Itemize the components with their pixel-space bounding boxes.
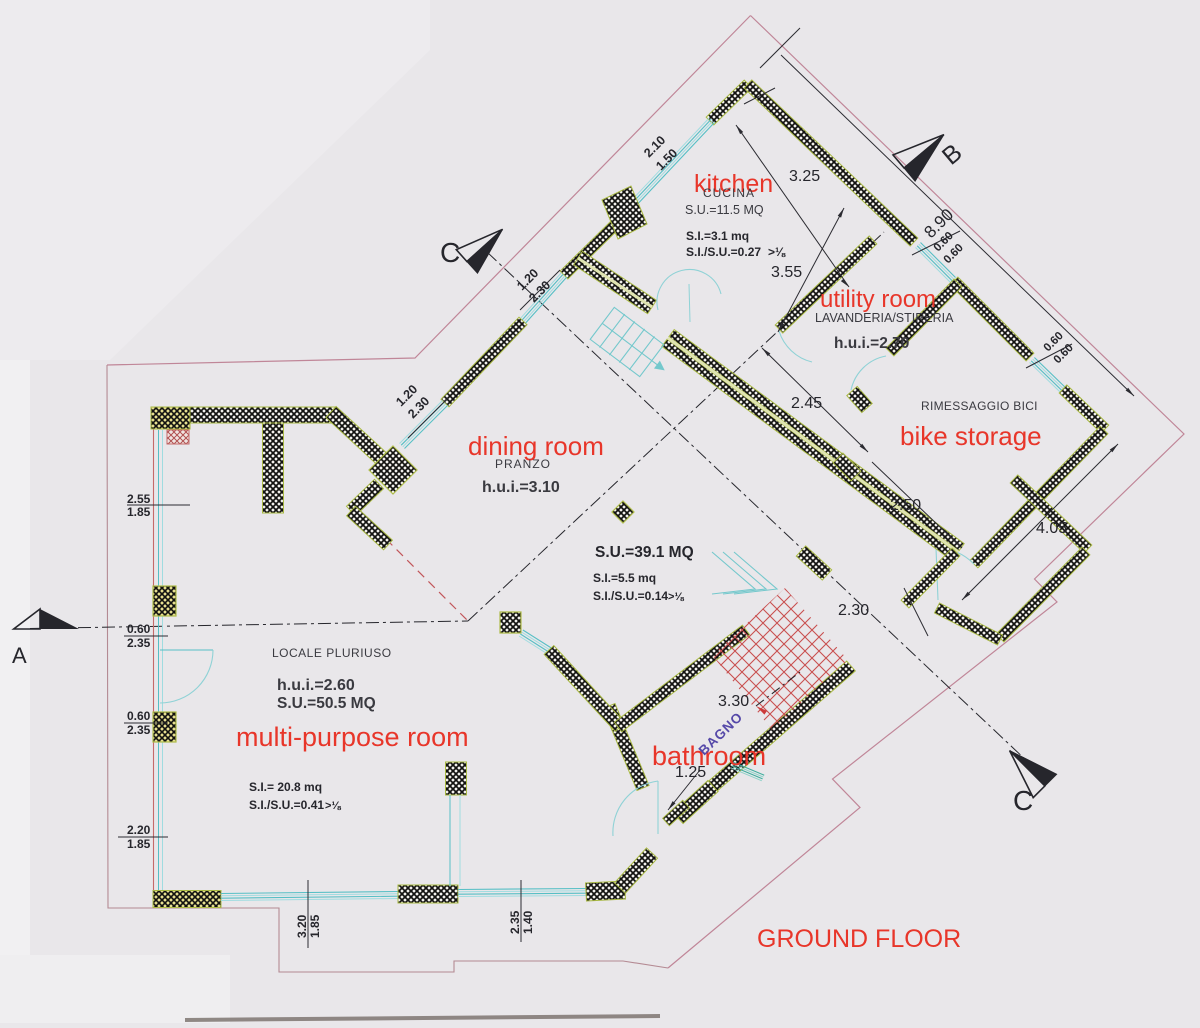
svg-text:C: C — [440, 237, 460, 268]
svg-text:>⅛: >⅛ — [325, 800, 341, 812]
svg-text:3.25: 3.25 — [789, 168, 820, 185]
svg-text:h.u.i.=2.60: h.u.i.=2.60 — [277, 677, 355, 694]
svg-text:1.85: 1.85 — [308, 914, 322, 938]
svg-text:2.35: 2.35 — [508, 910, 522, 934]
svg-text:h.u.i.=3.10: h.u.i.=3.10 — [482, 479, 560, 496]
svg-text:1.85: 1.85 — [127, 837, 151, 851]
svg-text:1.25: 1.25 — [675, 764, 706, 781]
svg-text:multi-purpose room: multi-purpose room — [236, 722, 469, 752]
svg-text:1.40: 1.40 — [521, 910, 535, 934]
svg-text:2.20: 2.20 — [127, 823, 151, 837]
svg-text:S.I.=3.1 mq: S.I.=3.1 mq — [686, 229, 749, 243]
svg-text:S.U.=50.5 MQ: S.U.=50.5 MQ — [277, 695, 376, 712]
svg-text:PRANZO: PRANZO — [495, 457, 551, 471]
svg-text:3.20: 3.20 — [295, 914, 309, 938]
svg-text:C: C — [1013, 785, 1033, 816]
svg-text:0.60: 0.60 — [127, 622, 151, 636]
svg-text:3.55: 3.55 — [771, 264, 802, 281]
svg-text:S.U.=11.5 MQ: S.U.=11.5 MQ — [685, 203, 764, 217]
svg-text:S.I./S.U.=0.27: S.I./S.U.=0.27 — [686, 245, 761, 259]
svg-text:S.I./S.U.=0.41: S.I./S.U.=0.41 — [249, 798, 324, 812]
svg-text:A: A — [12, 643, 27, 668]
svg-text:S.I.=5.5 mq: S.I.=5.5 mq — [593, 571, 656, 585]
svg-text:2.35: 2.35 — [127, 636, 151, 650]
svg-text:LAVANDERIA/STIRERIA: LAVANDERIA/STIRERIA — [815, 311, 954, 325]
svg-text:CUCINA: CUCINA — [703, 186, 755, 200]
svg-text:3.30: 3.30 — [718, 693, 749, 710]
svg-text:2.55: 2.55 — [127, 492, 151, 506]
svg-text:4.05: 4.05 — [1036, 520, 1067, 537]
svg-text:S.U.=39.1 MQ: S.U.=39.1 MQ — [595, 544, 694, 561]
svg-text:>⅛: >⅛ — [768, 245, 786, 259]
svg-text:RIMESSAGGIO BICI: RIMESSAGGIO BICI — [921, 399, 1038, 413]
svg-text:S.I.= 20.8 mq: S.I.= 20.8 mq — [249, 780, 322, 794]
svg-text:2.35: 2.35 — [127, 723, 151, 737]
svg-text:1.85: 1.85 — [127, 505, 151, 519]
svg-text:0.60: 0.60 — [127, 709, 151, 723]
svg-text:S.I./S.U.=0.14: S.I./S.U.=0.14 — [593, 589, 668, 603]
svg-text:2.50: 2.50 — [890, 497, 921, 514]
svg-text:GROUND FLOOR: GROUND FLOOR — [757, 925, 961, 953]
svg-text:2.30: 2.30 — [838, 602, 869, 619]
svg-text:2.45: 2.45 — [791, 395, 822, 412]
svg-text:h.u.i.=2.70: h.u.i.=2.70 — [834, 335, 909, 352]
svg-text:>⅛: >⅛ — [668, 591, 684, 603]
svg-text:LOCALE PLURIUSO: LOCALE PLURIUSO — [272, 646, 392, 660]
svg-text:utility room: utility room — [820, 286, 936, 313]
svg-text:bike storage: bike storage — [900, 421, 1042, 451]
